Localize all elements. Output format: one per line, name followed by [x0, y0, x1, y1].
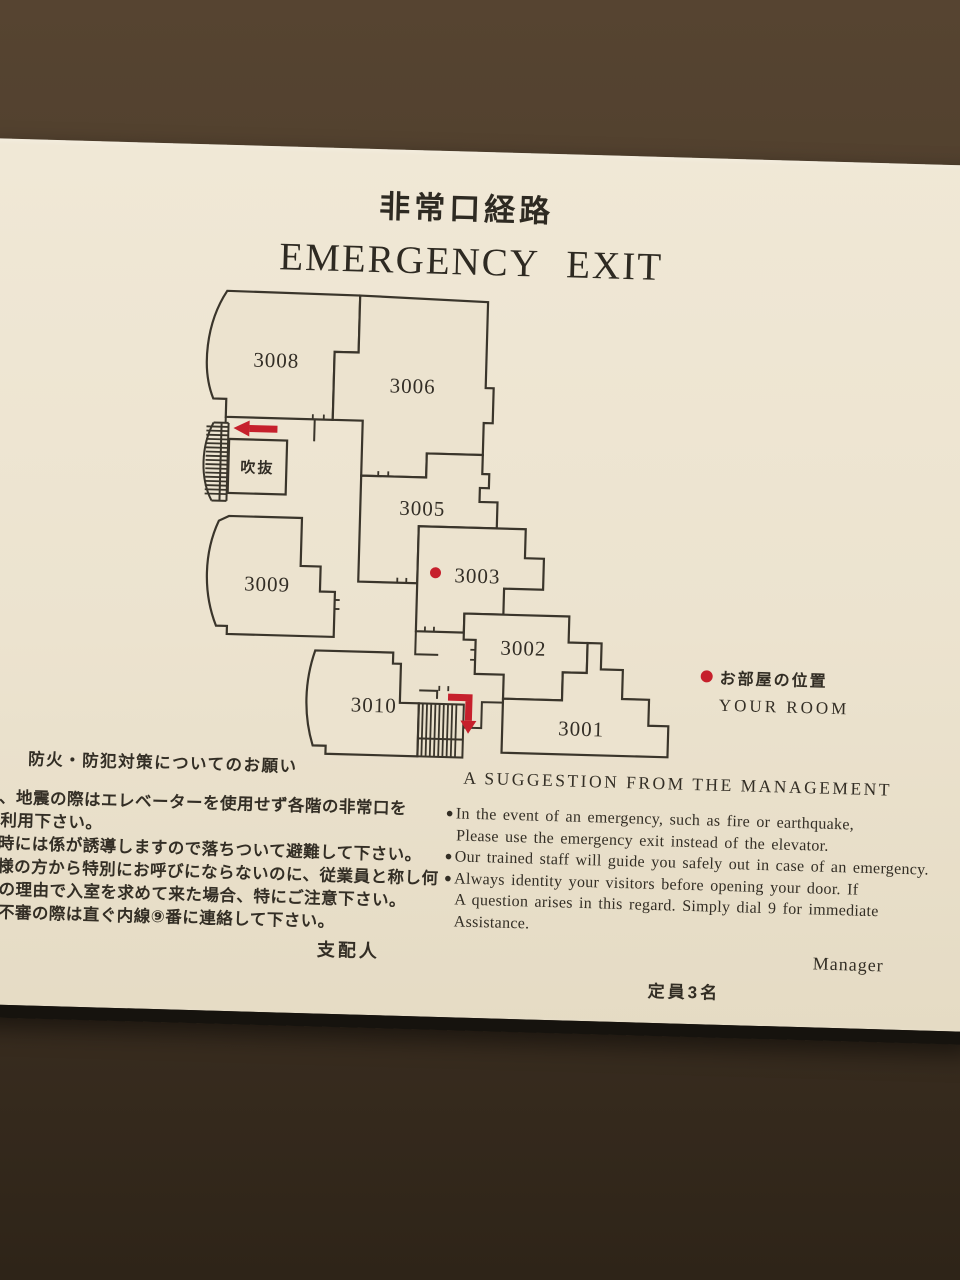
wall-background: 非常口経路 EMERGENCY EXIT — [0, 0, 960, 1280]
room-label-3001: 3001 — [558, 716, 605, 741]
english-signoff-manager: Manager — [442, 943, 904, 977]
japanese-signoff-manager: 支配人 — [317, 936, 381, 964]
room-label-3005: 3005 — [399, 496, 446, 521]
english-notice-body: ●In the event of an emergency, such as f… — [442, 803, 907, 945]
room-label-3010: 3010 — [350, 692, 397, 717]
bullet-icon: ● — [444, 848, 453, 863]
exit-arrow-west-icon — [233, 420, 277, 437]
legend-label-english: YOUR ROOM — [719, 696, 850, 720]
bullet-icon: ● — [444, 870, 453, 885]
room-label-3002: 3002 — [500, 636, 547, 661]
room-label-3003: 3003 — [454, 563, 501, 588]
capacity-note: 定員3名 — [564, 975, 805, 1007]
legend: お部屋の位置 YOUR ROOM — [700, 664, 851, 719]
room-label-3008: 3008 — [253, 348, 300, 373]
japanese-notice-body: 災、地震の際はエレベーターを使用せず各階の非常口を利用下さい。常時には係が誘導し… — [0, 786, 441, 937]
staircase-west-icon — [202, 422, 228, 501]
emergency-exit-sign: 非常口経路 EMERGENCY EXIT — [0, 138, 960, 1045]
legend-label-japanese: お部屋の位置 — [719, 665, 828, 692]
floor-plan: 30083006300530033002300130103009吹抜 — [190, 280, 713, 774]
room-label-吹抜: 吹抜 — [240, 458, 275, 477]
english-notice: A SUGGESTION FROM THE MANAGEMENT ●In the… — [442, 767, 909, 977]
staircase-south-icon — [417, 703, 463, 757]
your-room-dot-icon — [701, 670, 713, 682]
room-label-3009: 3009 — [244, 571, 291, 596]
bullet-icon: ● — [446, 805, 455, 820]
room-label-3006: 3006 — [389, 373, 436, 398]
